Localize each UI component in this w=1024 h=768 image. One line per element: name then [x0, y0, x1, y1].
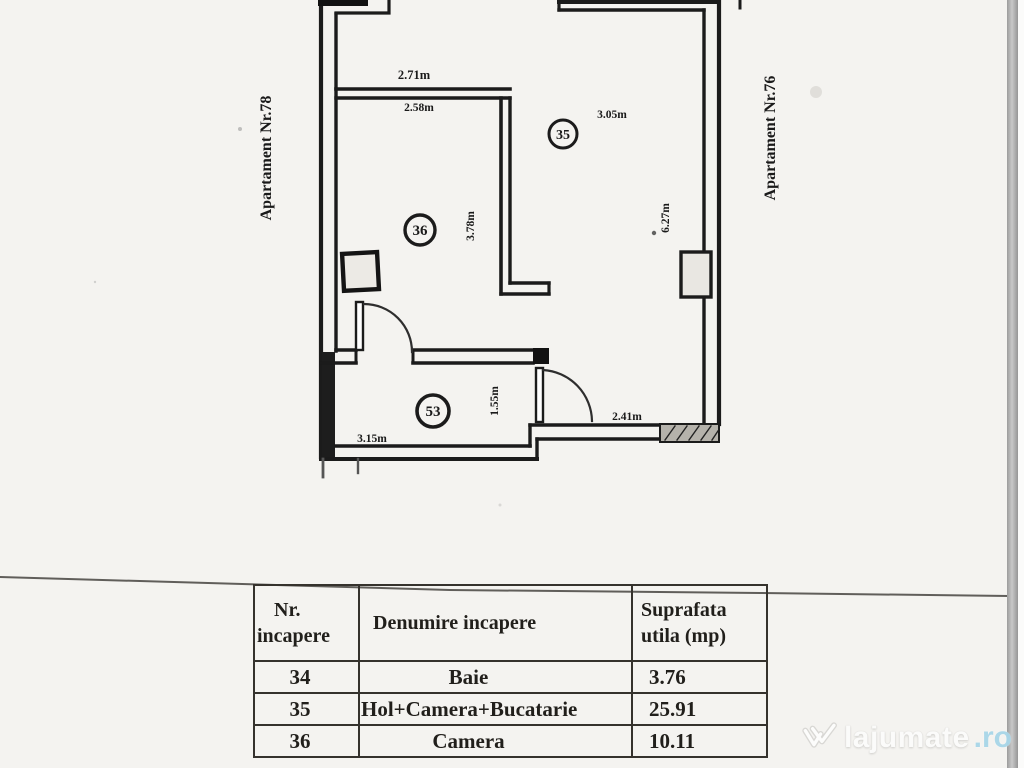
header-denumire: Denumire incapere	[359, 585, 632, 661]
lajumate-watermark: lajumate.ro	[800, 712, 1012, 764]
cell-name: Hol+Camera+Bucatarie	[359, 693, 632, 725]
dimension-living-width: 3.05m	[597, 109, 627, 121]
dimension-hall-width: 3.15m	[357, 433, 387, 445]
wall-right	[704, 2, 719, 424]
room-table-body: 34Baie3.7635Hol+Camera+Bucatarie25.9136C…	[254, 661, 767, 757]
cell-name: Baie	[359, 661, 632, 693]
dimension-camera-height: 3.78m	[465, 211, 477, 241]
header-nr-incapere: Nr. incapere	[254, 585, 359, 661]
header-denumire-text: Denumire incapere	[361, 610, 630, 636]
dimension-living-height: 6.27m	[660, 203, 672, 233]
apartment-label-right: Apartament Nr.76	[762, 76, 779, 201]
wall-stubs-bottom	[323, 459, 358, 477]
wall-top-camera	[336, 89, 510, 98]
header-nr-line1: Nr.	[256, 597, 357, 623]
watermark-tld: .ro	[974, 721, 1012, 755]
wall-top-right	[559, 0, 740, 10]
room-area-table-section: Nr. incapere Denumire incapere Suprafata…	[253, 584, 766, 758]
cell-nr: 35	[254, 693, 359, 725]
lajumate-logo-icon	[800, 715, 840, 761]
cell-area: 3.76	[632, 661, 767, 693]
scan-speck	[94, 86, 822, 507]
door-camera	[356, 302, 412, 352]
wall-shaft-box	[681, 252, 711, 297]
cell-area: 25.91	[632, 693, 767, 725]
door-bath	[536, 368, 592, 422]
wall-left	[318, 0, 389, 458]
scan-edge-bar	[1007, 0, 1018, 768]
cell-nr: 34	[254, 661, 359, 693]
header-suprafata: Suprafata utila (mp)	[632, 585, 767, 661]
cell-name: Camera	[359, 725, 632, 757]
wall-hatched-segment	[660, 424, 719, 442]
column-symbol	[342, 252, 379, 291]
table-row: 36Camera10.11	[254, 725, 767, 757]
cell-area: 10.11	[632, 725, 767, 757]
cell-nr: 36	[254, 725, 359, 757]
watermark-brand-text: lajumate	[844, 721, 970, 755]
dimension-top-outer: 2.71m	[398, 68, 431, 82]
room-number-camera: 36	[413, 223, 429, 239]
wall-bath-bottom	[530, 425, 660, 439]
table-header-row: Nr. incapere Denumire incapere Suprafata…	[254, 585, 767, 661]
header-nr-line2: incapere	[256, 623, 357, 649]
table-row: 35Hol+Camera+Bucatarie25.91	[254, 693, 767, 725]
header-suprafata-line2: utila (mp)	[641, 623, 765, 649]
page-right-strip	[1018, 0, 1024, 768]
wall-partition	[501, 98, 549, 294]
room-number-hall: 53	[426, 404, 441, 420]
table-row: 34Baie3.76	[254, 661, 767, 693]
room-number-living: 35	[556, 128, 570, 143]
apartment-label-left: Apartament Nr.78	[258, 96, 275, 221]
room-table: Nr. incapere Denumire incapere Suprafata…	[253, 584, 768, 758]
header-suprafata-line1: Suprafata	[641, 597, 765, 623]
dimension-bath-width: 2.41m	[612, 411, 642, 423]
dimension-bath-height: 1.55m	[489, 386, 501, 416]
wall-hall-bottom	[321, 425, 537, 459]
dimension-top-inner: 2.58m	[404, 102, 434, 114]
